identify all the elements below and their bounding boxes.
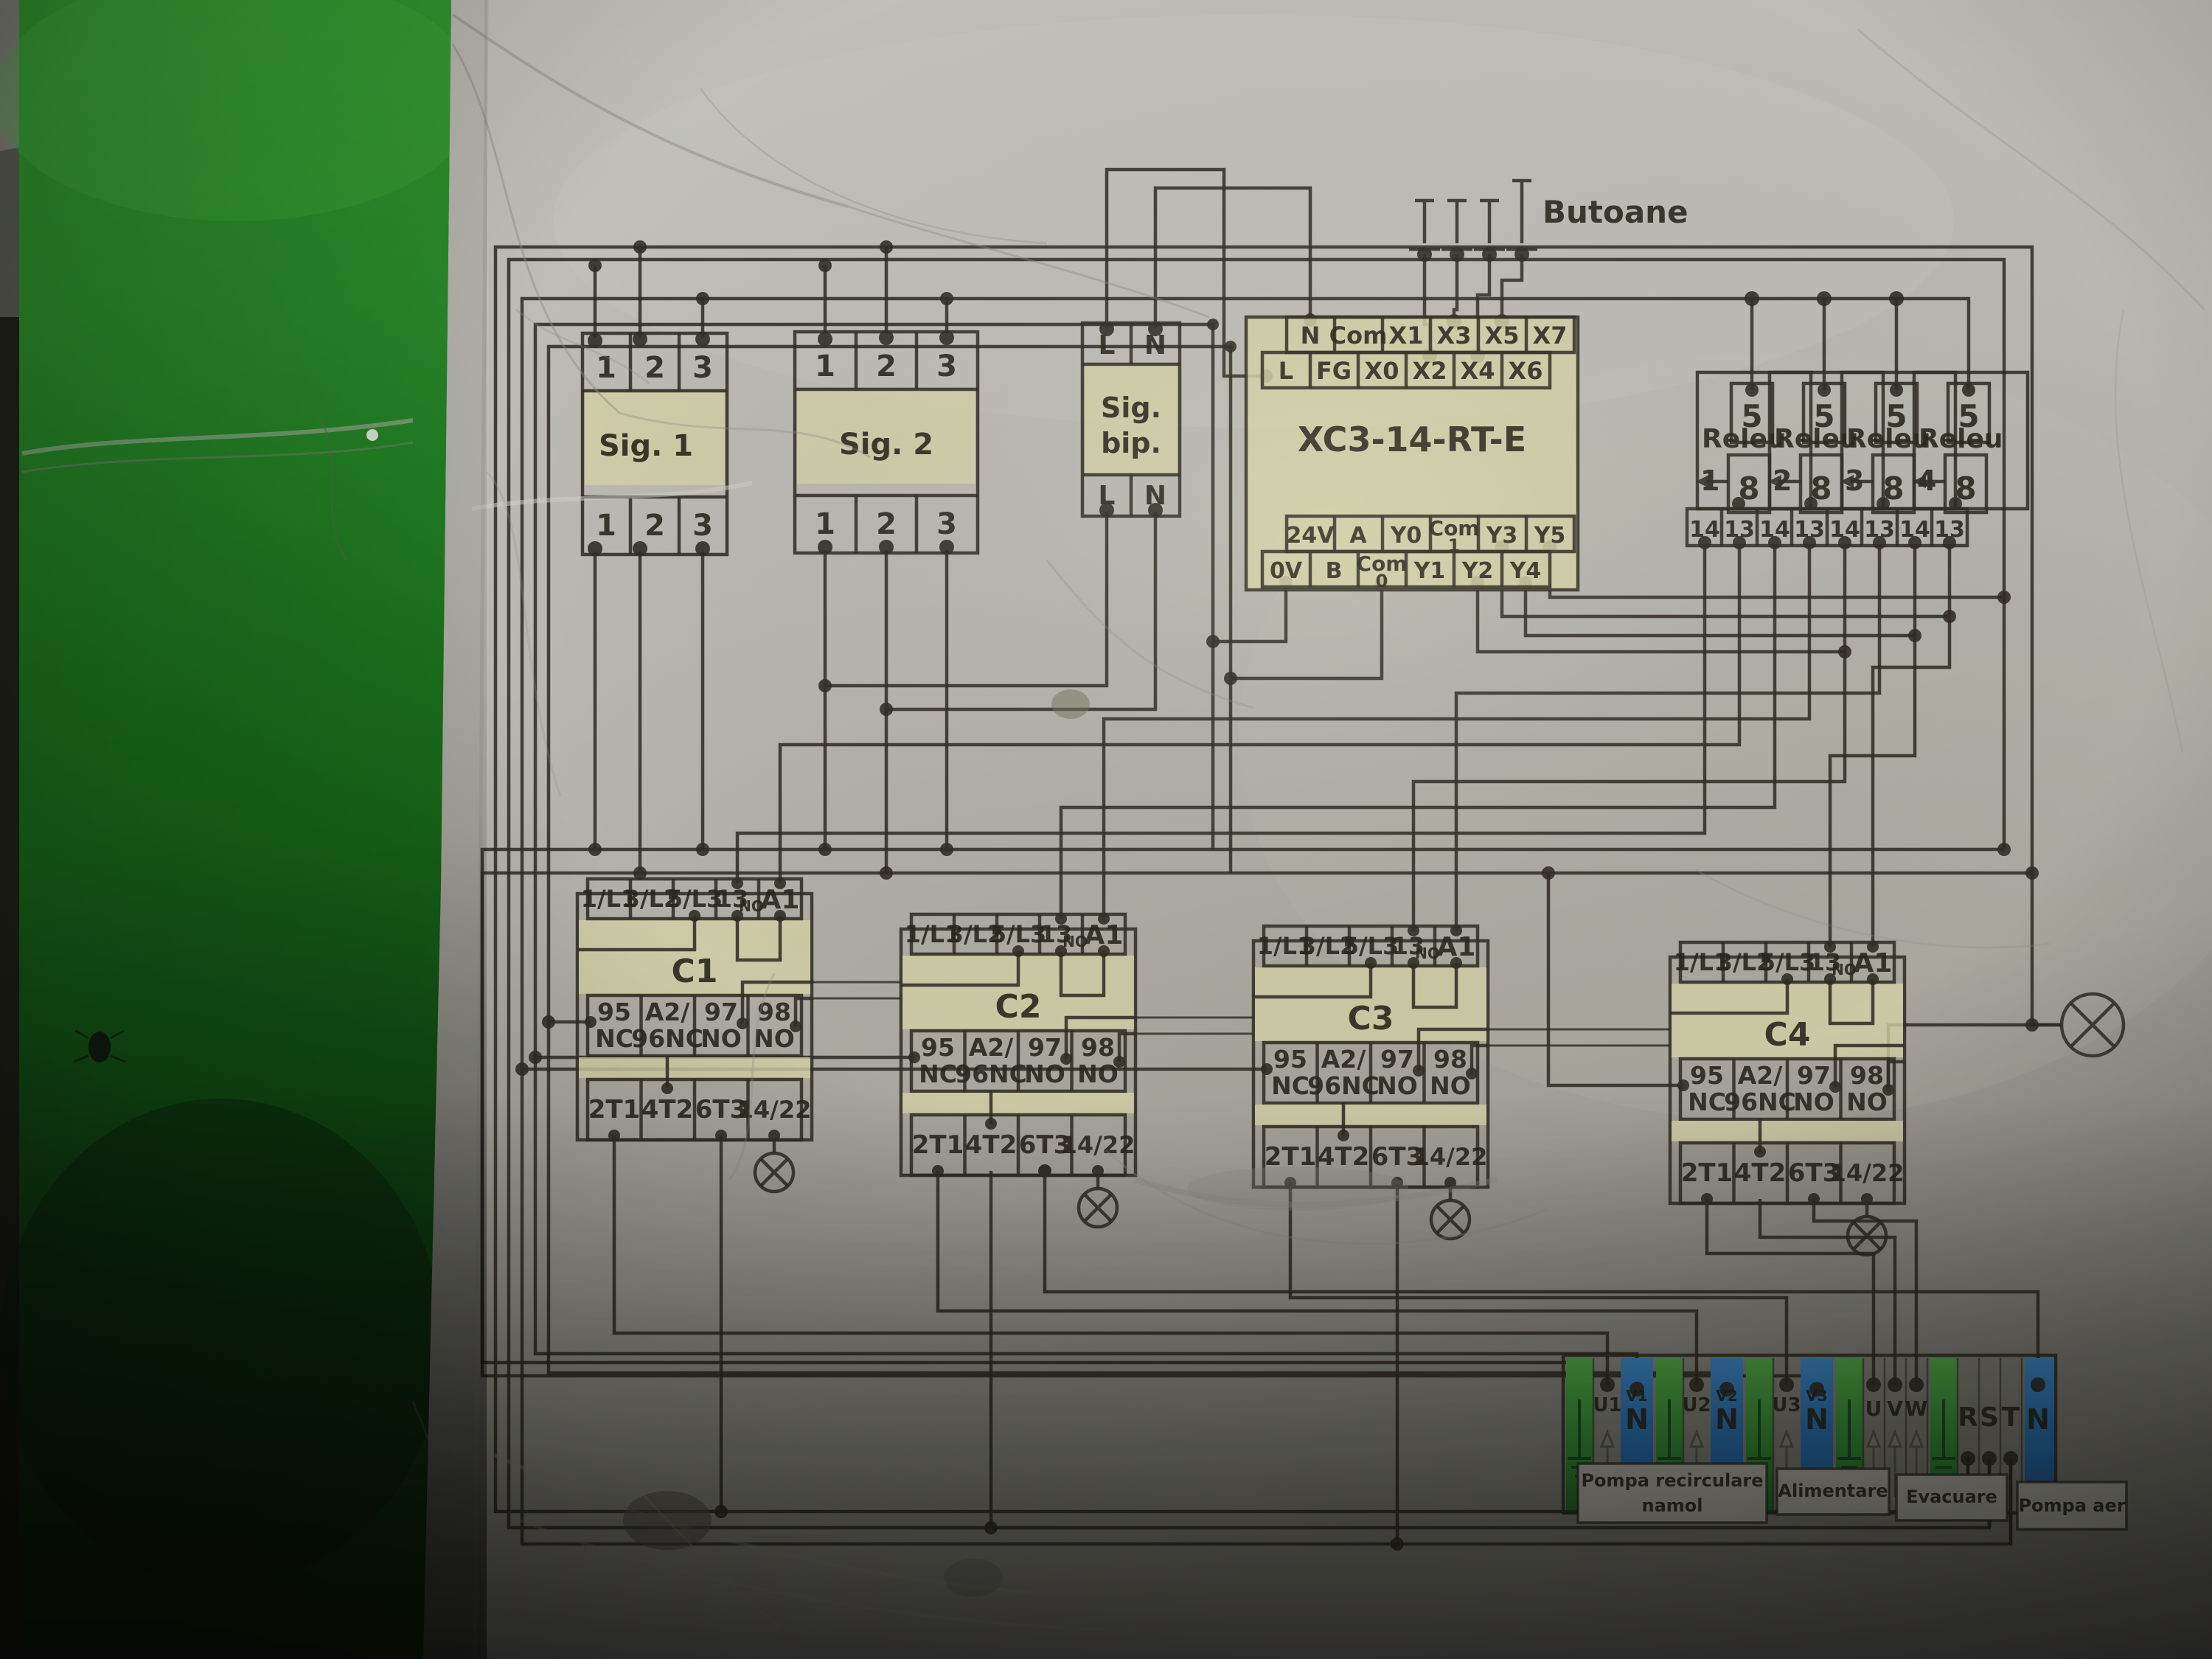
photo-canvas: 1 2 3 Sig. 1 1 2 3 1 2 3 Sig. 2 1 2 3 [0, 0, 2212, 1659]
panel-photo: 1 2 3 Sig. 1 1 2 3 1 2 3 Sig. 2 1 2 3 [0, 0, 2212, 1659]
lighting-overlay [0, 0, 2212, 1659]
